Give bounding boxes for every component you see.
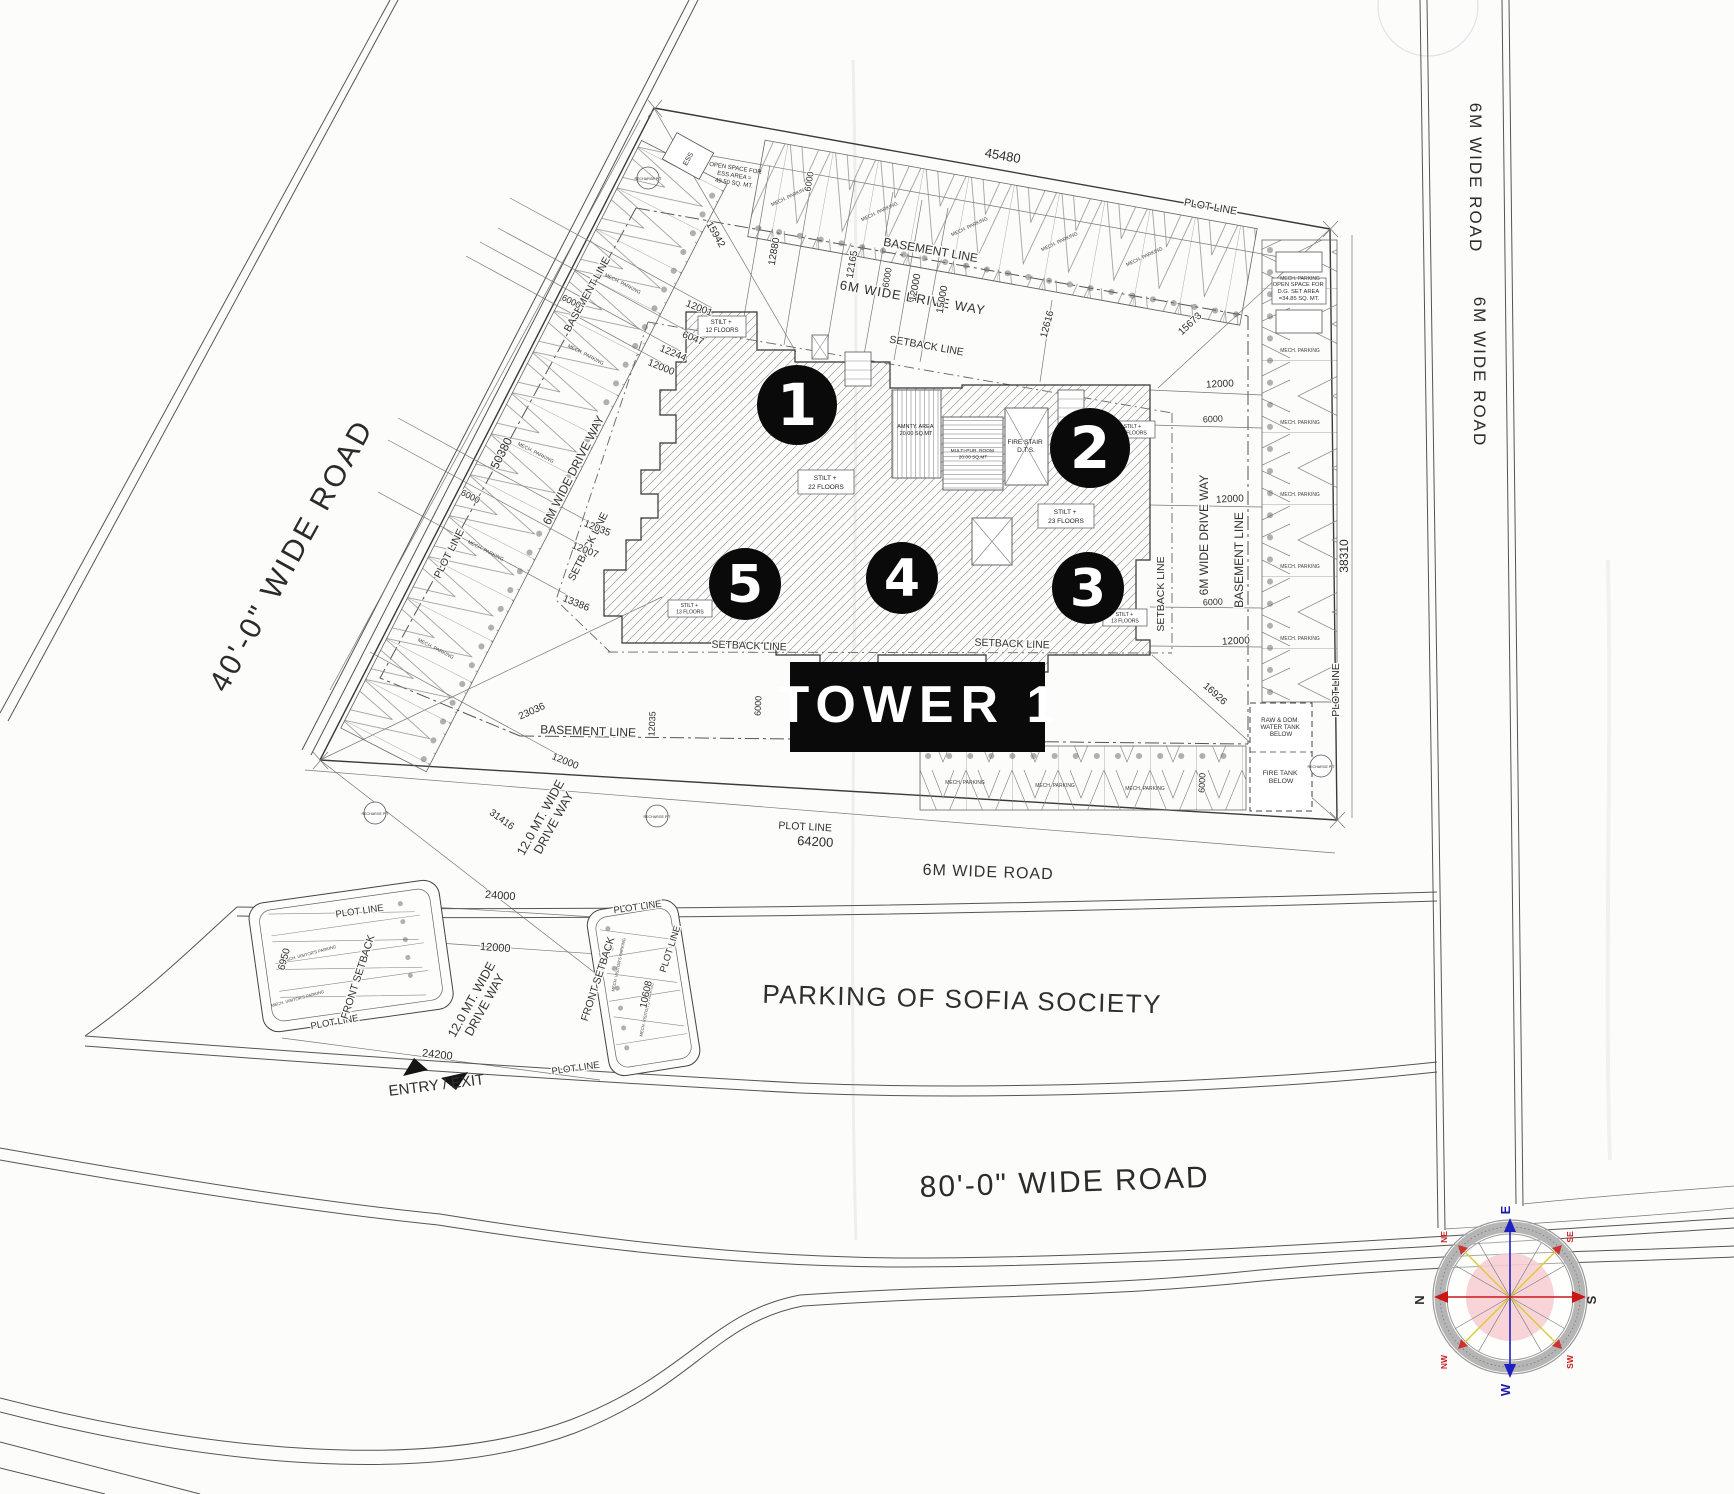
mech-right-2: MECH. PARKING [1280, 348, 1320, 354]
entry-exit-label: ENTRY / EXIT [388, 1071, 485, 1100]
compass-sw: SW [1565, 1354, 1575, 1369]
mech-bottom-1: MECH. PARKING [945, 780, 985, 786]
raw-tank-l2: WATER TANK [1260, 724, 1300, 731]
dim-16926: 16926 [1201, 681, 1229, 708]
fire-stair-l1: FIRE STAIR [1007, 439, 1043, 446]
plot-line-bottom: PLOT LINE [778, 820, 832, 835]
compass-ne: NE [1439, 1231, 1449, 1243]
tank-area: RAW & DOM. WATER TANK BELOW FIRE TANK BE… [1250, 703, 1335, 811]
fire-tank-l2: BELOW [1269, 778, 1294, 785]
multi-l1: MULTI-PUR. ROOM [951, 448, 994, 454]
dim-12000-bl: 12000 [550, 751, 580, 772]
compass-s: S [1584, 1295, 1599, 1304]
dim-12616: 12616 [1039, 309, 1057, 339]
setback-line-top: SETBACK LINE [888, 334, 964, 359]
dim-6000-bottom-1: 6000 [752, 696, 763, 717]
b23-l1: STILT + [1054, 509, 1077, 516]
driveway-right: 6M WIDE DRIVE WAY [1197, 475, 1211, 596]
raw-tank-l3: BELOW [1270, 731, 1293, 738]
recharge-pit-3-label: RECHARGE PIT [362, 812, 390, 816]
plot-line-soc-br: PLOT LINE [551, 1060, 600, 1078]
setback-line-bottom-1: SETBACK LINE [711, 639, 787, 654]
mech-bottom-2: MECH. PARKING [1035, 783, 1075, 789]
site-plan-drawing: 40'-0" WIDE ROAD 6M WIDE ROAD 6M WIDE RO… [0, 0, 1734, 1494]
dim-6000-bottom-2: 6000 [1196, 773, 1207, 794]
open-space-dg: OPEN SPACE FOR D.G. SET AREA =34.85 SQ. … [1273, 282, 1326, 302]
raw-tank-l1: RAW & DOM. [1261, 717, 1299, 724]
parking-row-top [748, 140, 1257, 325]
compass-se: SE [1565, 1231, 1575, 1243]
dim-12000-left: 12000 [646, 357, 676, 378]
recharge-pit-4-label: RECHARGE PIT [644, 815, 672, 819]
dim-12000-right-2: 12000 [1216, 493, 1245, 505]
dim-6000-right-1: 6000 [1203, 413, 1224, 424]
b13c-l2: 13 FLOORS [676, 610, 704, 616]
site-plan-page: 40'-0" WIDE ROAD 6M WIDE ROAD 6M WIDE RO… [0, 0, 1734, 1494]
dim-6000-right-2: 6000 [1203, 596, 1224, 607]
amenity-l1: AMNTY. AREA [897, 424, 934, 430]
mech-right-5: MECH. PARKING [1280, 564, 1320, 570]
road-east-label-2: 6M WIDE ROAD [1470, 297, 1489, 448]
b22-l1: STILT + [814, 475, 837, 482]
dim-12000-right-3: 12000 [1222, 635, 1251, 647]
dim-64200: 64200 [797, 833, 834, 850]
marker-3[interactable]: 3 [1052, 552, 1124, 624]
fire-tank-l1: FIRE TANK [1263, 770, 1298, 777]
dg-area: OPEN SPACE FOR D.G. SET AREA =34.85 SQ. … [1272, 252, 1326, 333]
tower-banner-label: TOWER 1 [778, 676, 1063, 734]
dim-13386: 13386 [561, 593, 591, 614]
dim-24000: 24000 [485, 889, 516, 903]
compass-n: N [1412, 1295, 1427, 1304]
open-space-dg-l2: D.G. SET AREA [1277, 289, 1319, 295]
b13b-l2: 13 FLOORS [1111, 619, 1139, 625]
recharge-pit-2-label: RECHARGE PIT [1308, 765, 1336, 769]
mech-right-4: MECH. PARKING [1280, 492, 1320, 498]
mech-right-6: MECH. PARKING [1280, 636, 1320, 642]
b23-l2: 23 FLOORS [1048, 518, 1084, 525]
fire-stair-l2: D.T.S. [1017, 447, 1035, 454]
dim-15942: 15942 [703, 220, 727, 250]
road-east: 6M WIDE ROAD 6M WIDE ROAD [1420, 0, 1734, 1230]
marker-5-number[interactable]: 5 [727, 555, 763, 615]
b12-l1: STILT + [711, 320, 732, 326]
plot-line-right: PLOT LINE [1330, 663, 1342, 717]
basement-line-right: BASEMENT LINE [1232, 512, 1246, 608]
open-space-dg-l3: =34.85 SQ. MT. [1279, 296, 1320, 302]
entry-arrow-icon [403, 1058, 428, 1076]
marker-1-number[interactable]: 1 [777, 371, 817, 439]
driveway-12m-2: 12.0 MT. WIDE DRIVE WAY [445, 956, 512, 1046]
society-parking-label: PARKING OF SOFIA SOCIETY [762, 979, 1162, 1019]
plot-line-top-right: PLOT LINE [1183, 196, 1238, 217]
compass-rose: E W N S NE SE NW SW [1412, 1205, 1599, 1396]
dim-12244: 12244 [658, 343, 688, 364]
entry-exit: ENTRY / EXIT [388, 1058, 485, 1100]
compass-nw: NW [1439, 1354, 1449, 1369]
setback-line-right: SETBACK LINE [1155, 556, 1167, 631]
road-west-label: 40'-0" WIDE ROAD [203, 414, 380, 698]
compass-w: W [1498, 1383, 1513, 1396]
recharge-pit-1-label: RECHARGE PIT [635, 177, 663, 181]
mech-right-1: MECH. PARKING [1280, 276, 1320, 282]
dim-38310: 38310 [1337, 539, 1351, 573]
dim-23036: 23036 [517, 701, 547, 723]
marker-2-number[interactable]: 2 [1070, 414, 1110, 482]
dim-12880: 12880 [767, 236, 783, 266]
marker-4[interactable]: 4 [866, 542, 938, 614]
compass-e: E [1498, 1205, 1513, 1214]
dim-12000-society: 12000 [480, 941, 511, 955]
dim-12035-v: 12035 [646, 711, 657, 737]
dim-31416: 31416 [487, 807, 516, 833]
tower-banner: TOWER 1 [778, 662, 1063, 752]
b12-l2: 12 FLOORS [705, 328, 738, 334]
marker-4-number[interactable]: 4 [884, 549, 920, 609]
mech-bottom-3: MECH. PARKING [1125, 786, 1165, 792]
mech-right-3: MECH. PARKING [1280, 420, 1320, 426]
marker-1[interactable]: 1 [757, 365, 837, 445]
marker-3-number[interactable]: 3 [1070, 559, 1106, 619]
b13a-l1: STILT + [1124, 424, 1142, 430]
marker-5[interactable]: 5 [709, 548, 781, 620]
dim-12000-right-1: 12000 [1206, 378, 1235, 390]
amenity-area-label: AMNTY. AREA 20.00 SQ.MT [897, 424, 935, 437]
multi-l2: 20.00 SQ.MT [959, 455, 988, 461]
b13b-l1: STILT + [1116, 612, 1134, 618]
building-footprint: STILT + 12 FLOORS STILT + 22 FLOORS STIL… [604, 312, 1155, 688]
basement-line-bottom: BASEMENT LINE [540, 722, 636, 739]
main-stair-1 [845, 352, 871, 386]
road-6m-bottom: 6M WIDE ROAD [922, 862, 1054, 884]
b22-l2: 22 FLOORS [808, 484, 844, 491]
dim-45480: 45480 [984, 145, 1022, 166]
parking-column-right [1262, 240, 1337, 702]
dim-6000-top-2: 6000 [880, 267, 893, 288]
open-space-dg-l1: OPEN SPACE FOR [1273, 282, 1324, 288]
road-east-label-1: 6M WIDE ROAD [1466, 103, 1485, 254]
road-south-label: 80'-0" WIDE ROAD [919, 1161, 1210, 1204]
amenity-l2: 20.00 SQ.MT [900, 431, 933, 437]
marker-2[interactable]: 2 [1050, 408, 1130, 488]
b13c-l1: STILT + [681, 603, 699, 609]
